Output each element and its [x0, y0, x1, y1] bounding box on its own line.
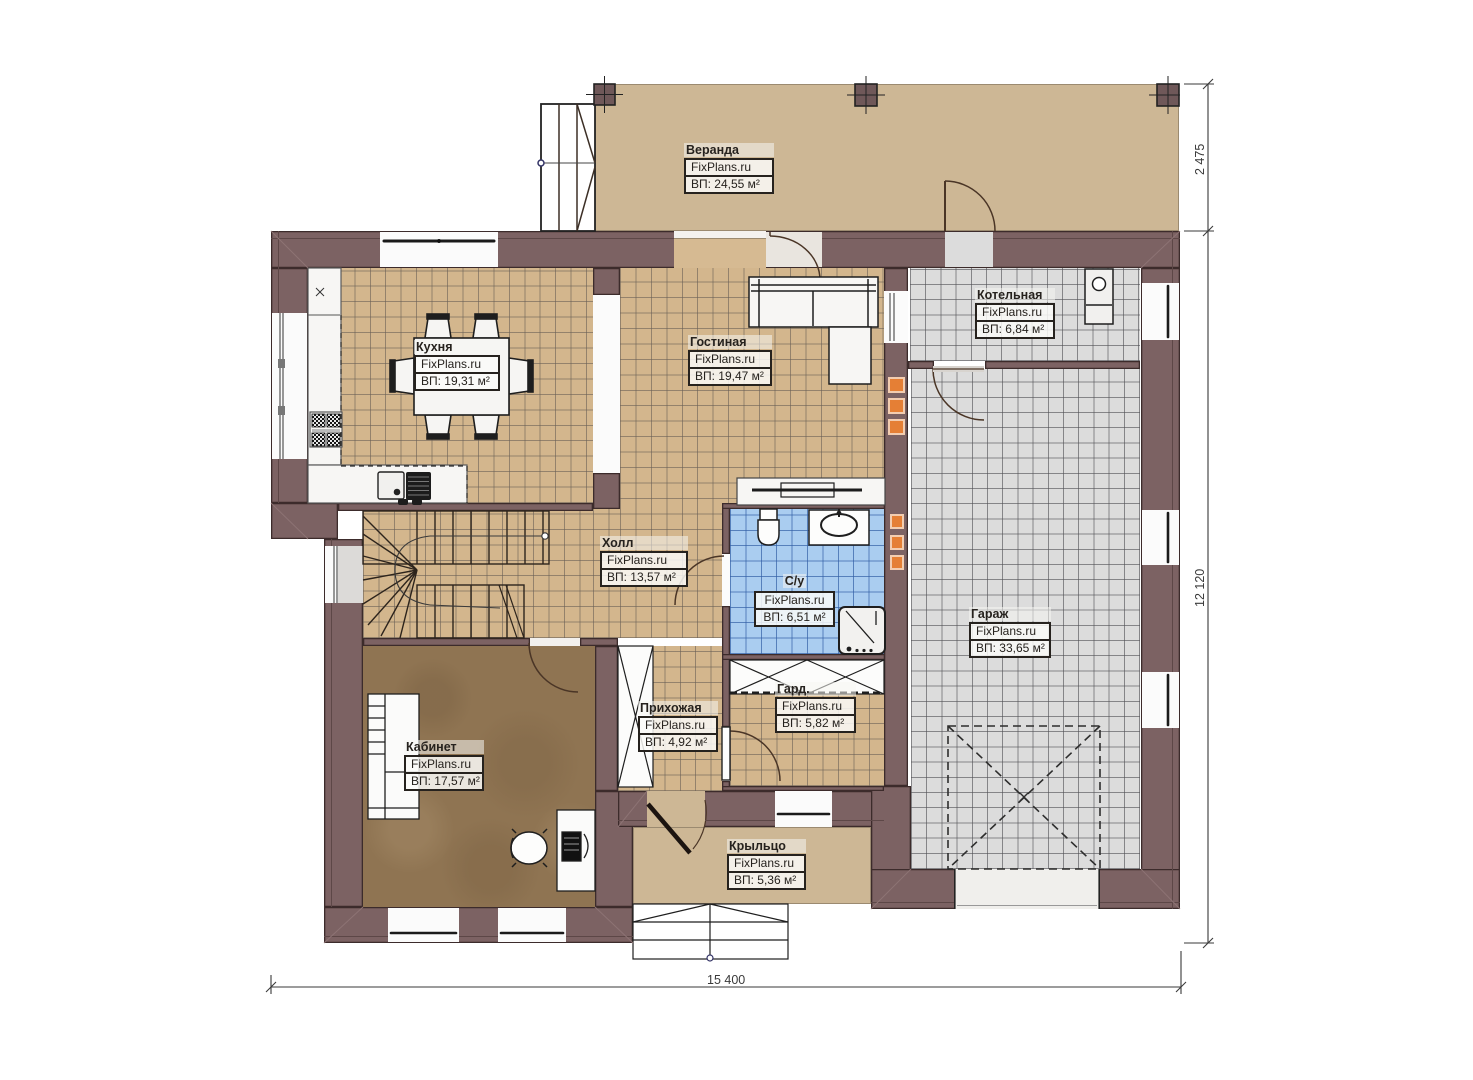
svg-text:2 475: 2 475 — [1193, 144, 1207, 175]
svg-text:15 400: 15 400 — [707, 973, 745, 987]
svg-text:12 120: 12 120 — [1193, 569, 1207, 607]
